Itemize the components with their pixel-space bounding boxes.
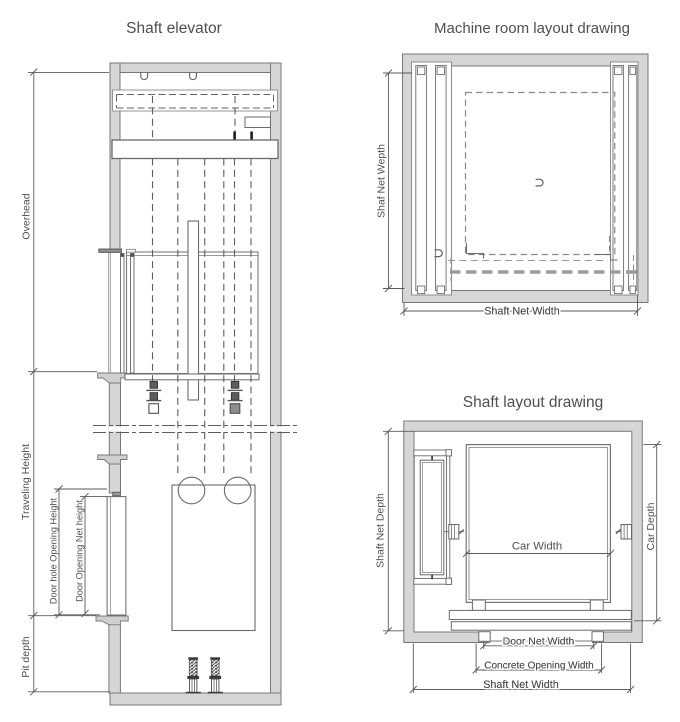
svg-text:Traveling Height: Traveling Height	[20, 444, 32, 520]
svg-text:Machine room layout drawing: Machine room layout drawing	[434, 20, 630, 37]
svg-text:Shaft Net Width: Shaft Net Width	[484, 306, 560, 318]
svg-text:Shaft layout drawing: Shaft layout drawing	[463, 394, 603, 411]
svg-text:Pit depth: Pit depth	[20, 636, 32, 678]
svg-text:Shaf Net Wepth: Shaf Net Wepth	[376, 144, 388, 218]
svg-text:Concrete Opening Width: Concrete Opening Width	[484, 661, 594, 672]
svg-text:Shaft elevator: Shaft elevator	[126, 20, 222, 37]
svg-text:Car Width: Car Width	[512, 541, 562, 553]
svg-text:Door hole Opening Height: Door hole Opening Height	[49, 497, 59, 604]
svg-text:Door Opening Net height: Door Opening Net height	[75, 500, 85, 602]
svg-text:Shaft Net Depth: Shaft Net Depth	[375, 493, 387, 568]
svg-text:Shaft Net Width: Shaft Net Width	[483, 679, 559, 691]
svg-text:Door Net Width: Door Net Width	[503, 636, 575, 648]
svg-text:Car Depth: Car Depth	[645, 502, 657, 550]
svg-text:Overhead: Overhead	[21, 193, 33, 239]
